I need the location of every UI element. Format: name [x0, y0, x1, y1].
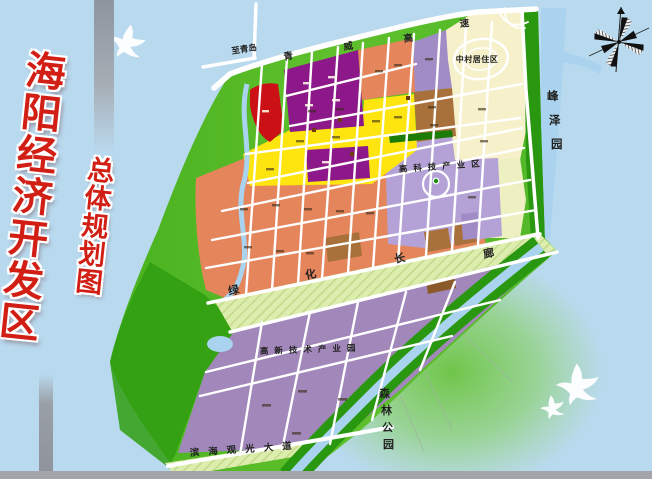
pond: [207, 336, 233, 352]
bottom-border-strip: [0, 471, 652, 479]
decorative-gray-bar-top: [94, 0, 114, 152]
fengze-char: 峰: [547, 89, 559, 103]
forest-park-char: 园: [383, 438, 394, 451]
fengze-char: 泽: [549, 114, 561, 127]
zhongcun-label: 中村居住区: [456, 54, 499, 64]
forest-park-char: 森: [379, 386, 391, 400]
forest-park-char: 公: [382, 421, 393, 434]
planning-map-page: 至青岛 青 威 高 速 中村居住区 峰 泽 园 高科技产业区 绿 化 长 廊 高…: [0, 0, 652, 479]
lavender-block: [461, 212, 480, 240]
highway-char: 速: [459, 17, 470, 30]
forest-park-char: 林: [381, 403, 392, 417]
fengze-char: 园: [551, 137, 563, 151]
decorative-gray-bar-bottom: [39, 374, 53, 472]
hitech-circle-dot-green: [434, 179, 438, 183]
compass-rose-icon: [589, 7, 649, 72]
